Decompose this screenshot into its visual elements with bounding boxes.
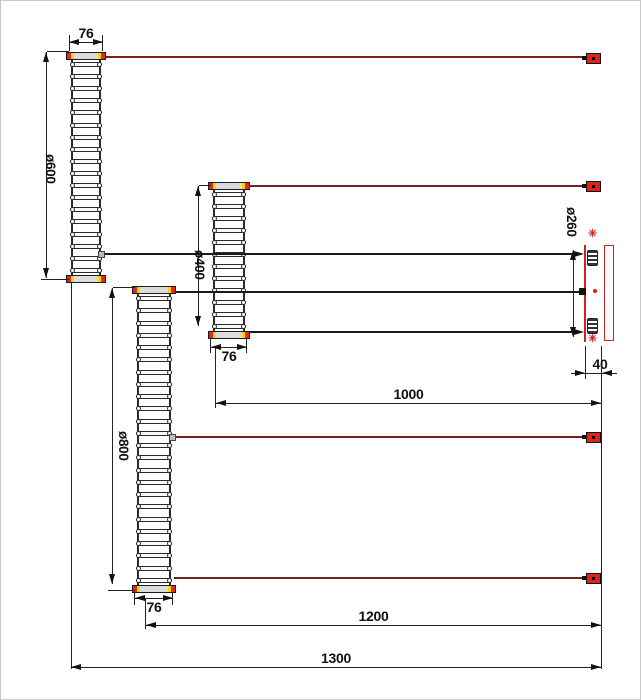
dim-arrow	[570, 250, 576, 260]
coil-fin	[70, 123, 102, 128]
lead-wire-coil800-mid	[174, 436, 587, 438]
wire-joint-coil800	[169, 434, 176, 441]
dim-line-1300	[71, 667, 601, 668]
coil-fin	[136, 455, 172, 460]
dim-arrow	[570, 327, 576, 337]
coil-fin	[212, 192, 246, 197]
dim-label-coil400-diameter: ø400	[191, 235, 207, 295]
plug-coil800-mid	[586, 432, 601, 443]
terminal-screw-bottom-icon: ✳	[588, 334, 597, 345]
coil-fin	[70, 183, 102, 188]
coil-fin	[136, 296, 172, 301]
terminal-center-lug	[579, 288, 586, 295]
coil-fin	[136, 394, 172, 399]
drawing-canvas: ✳ ✳ 76 ø600 ø400 76 ø800 76 ø260 40	[0, 0, 641, 700]
coil-fin	[136, 382, 172, 387]
dim-arrow	[575, 370, 585, 376]
coil-fin	[136, 529, 172, 534]
terminal-spring-bottom	[587, 318, 598, 334]
terminal-plate	[604, 245, 614, 341]
plug-coil400	[586, 181, 601, 192]
dim-line-dia800	[112, 288, 113, 584]
coil-fin	[136, 492, 172, 497]
coil-fin	[136, 578, 172, 583]
coil-fin	[212, 264, 246, 269]
coil-fin	[136, 308, 172, 313]
coil-400-element	[211, 182, 247, 339]
leader-line	[108, 590, 135, 591]
coil-fin	[212, 204, 246, 209]
coil-600-fins	[69, 62, 103, 273]
dim-arrow	[43, 52, 49, 62]
lead-wire-coil400	[249, 185, 587, 187]
dim-label-coil600-width: 76	[69, 26, 103, 40]
dim-label-coil800-diameter: ø800	[115, 416, 131, 476]
dim-arrow	[109, 574, 115, 584]
coil-fin	[136, 357, 172, 362]
ext-line-right-datum	[601, 346, 602, 669]
coil-fin	[136, 480, 172, 485]
coil-fin	[70, 74, 102, 79]
dim-label-terminal-width: 40	[585, 357, 615, 371]
coil-fin	[212, 216, 246, 221]
coil-fin	[70, 219, 102, 224]
leader-line	[113, 287, 135, 288]
coil-800-bottom-cap	[132, 585, 176, 593]
coil-fin	[136, 419, 172, 424]
coil-fin	[70, 244, 102, 249]
dim-arrow	[43, 268, 49, 278]
coil-600-element	[69, 52, 103, 283]
coil-fin	[70, 98, 102, 103]
coil-fin	[212, 312, 246, 317]
coil-600-top-cap	[66, 52, 106, 60]
coil-fin	[70, 62, 102, 67]
link-wire-coil600-terminal	[101, 253, 581, 255]
dim-label-1000: 1000	[216, 387, 601, 401]
coil-800-fins	[135, 296, 173, 583]
coil-fin	[70, 232, 102, 237]
coil-fin	[136, 443, 172, 448]
coil-fin	[212, 324, 246, 329]
dim-arrow	[109, 288, 115, 298]
coil-fin	[136, 553, 172, 558]
leader-line	[47, 51, 69, 52]
link-wire-coil400-terminal	[250, 331, 581, 333]
dim-label-terminal-diameter: ø260	[563, 197, 579, 247]
coil-fin	[212, 240, 246, 245]
coil-fin	[70, 171, 102, 176]
dim-label-1300: 1300	[71, 651, 601, 665]
coil-fin	[136, 566, 172, 571]
coil-fin	[136, 370, 172, 375]
coil-600-bottom-cap	[66, 275, 106, 283]
coil-fin	[136, 333, 172, 338]
coil-800-element	[135, 286, 173, 593]
dim-label-coil600-diameter: ø600	[42, 139, 58, 199]
lead-wire-coil600	[105, 56, 587, 58]
coil-fin	[70, 268, 102, 273]
coil-fin	[70, 195, 102, 200]
coil-fin	[136, 517, 172, 522]
dim-label-coil400-width: 76	[211, 349, 247, 363]
coil-fin	[136, 321, 172, 326]
coil-fin	[136, 468, 172, 473]
plug-coil600	[586, 53, 601, 64]
dim-line-dia260	[573, 250, 574, 337]
leader-line	[41, 279, 69, 280]
lead-wire-coil800-bottom	[174, 577, 587, 579]
dim-line-1000	[216, 403, 601, 404]
coil-400-top-cap	[208, 182, 250, 190]
dim-label-1200: 1200	[146, 609, 601, 623]
coil-fin	[70, 110, 102, 115]
coil-400-bottom-cap	[208, 331, 250, 339]
coil-fin	[136, 504, 172, 509]
coil-fin	[136, 406, 172, 411]
plug-coil800-bottom	[586, 573, 601, 584]
wire-joint-coil600	[98, 251, 105, 258]
coil-fin	[70, 147, 102, 152]
dim-arrow	[195, 186, 201, 196]
coil-fin	[212, 300, 246, 305]
terminal-center-dot	[593, 289, 597, 293]
ext-line-left-datum	[71, 283, 72, 669]
dim-line-1200	[146, 625, 601, 626]
dim-arrow	[195, 316, 201, 326]
coil-fin	[212, 228, 246, 233]
coil-fin	[70, 135, 102, 140]
coil-fin	[136, 541, 172, 546]
coil-fin	[70, 159, 102, 164]
coil-fin	[212, 276, 246, 281]
coil-fin	[136, 345, 172, 350]
link-wire-coil800-terminal	[176, 291, 581, 293]
coil-fin	[70, 86, 102, 91]
coil-800-top-cap	[132, 286, 176, 294]
coil-fin	[136, 431, 172, 436]
coil-400-fins	[211, 192, 247, 329]
terminal-spring-top	[587, 250, 598, 266]
terminal-screw-top-icon: ✳	[588, 229, 597, 240]
coil-fin	[70, 207, 102, 212]
